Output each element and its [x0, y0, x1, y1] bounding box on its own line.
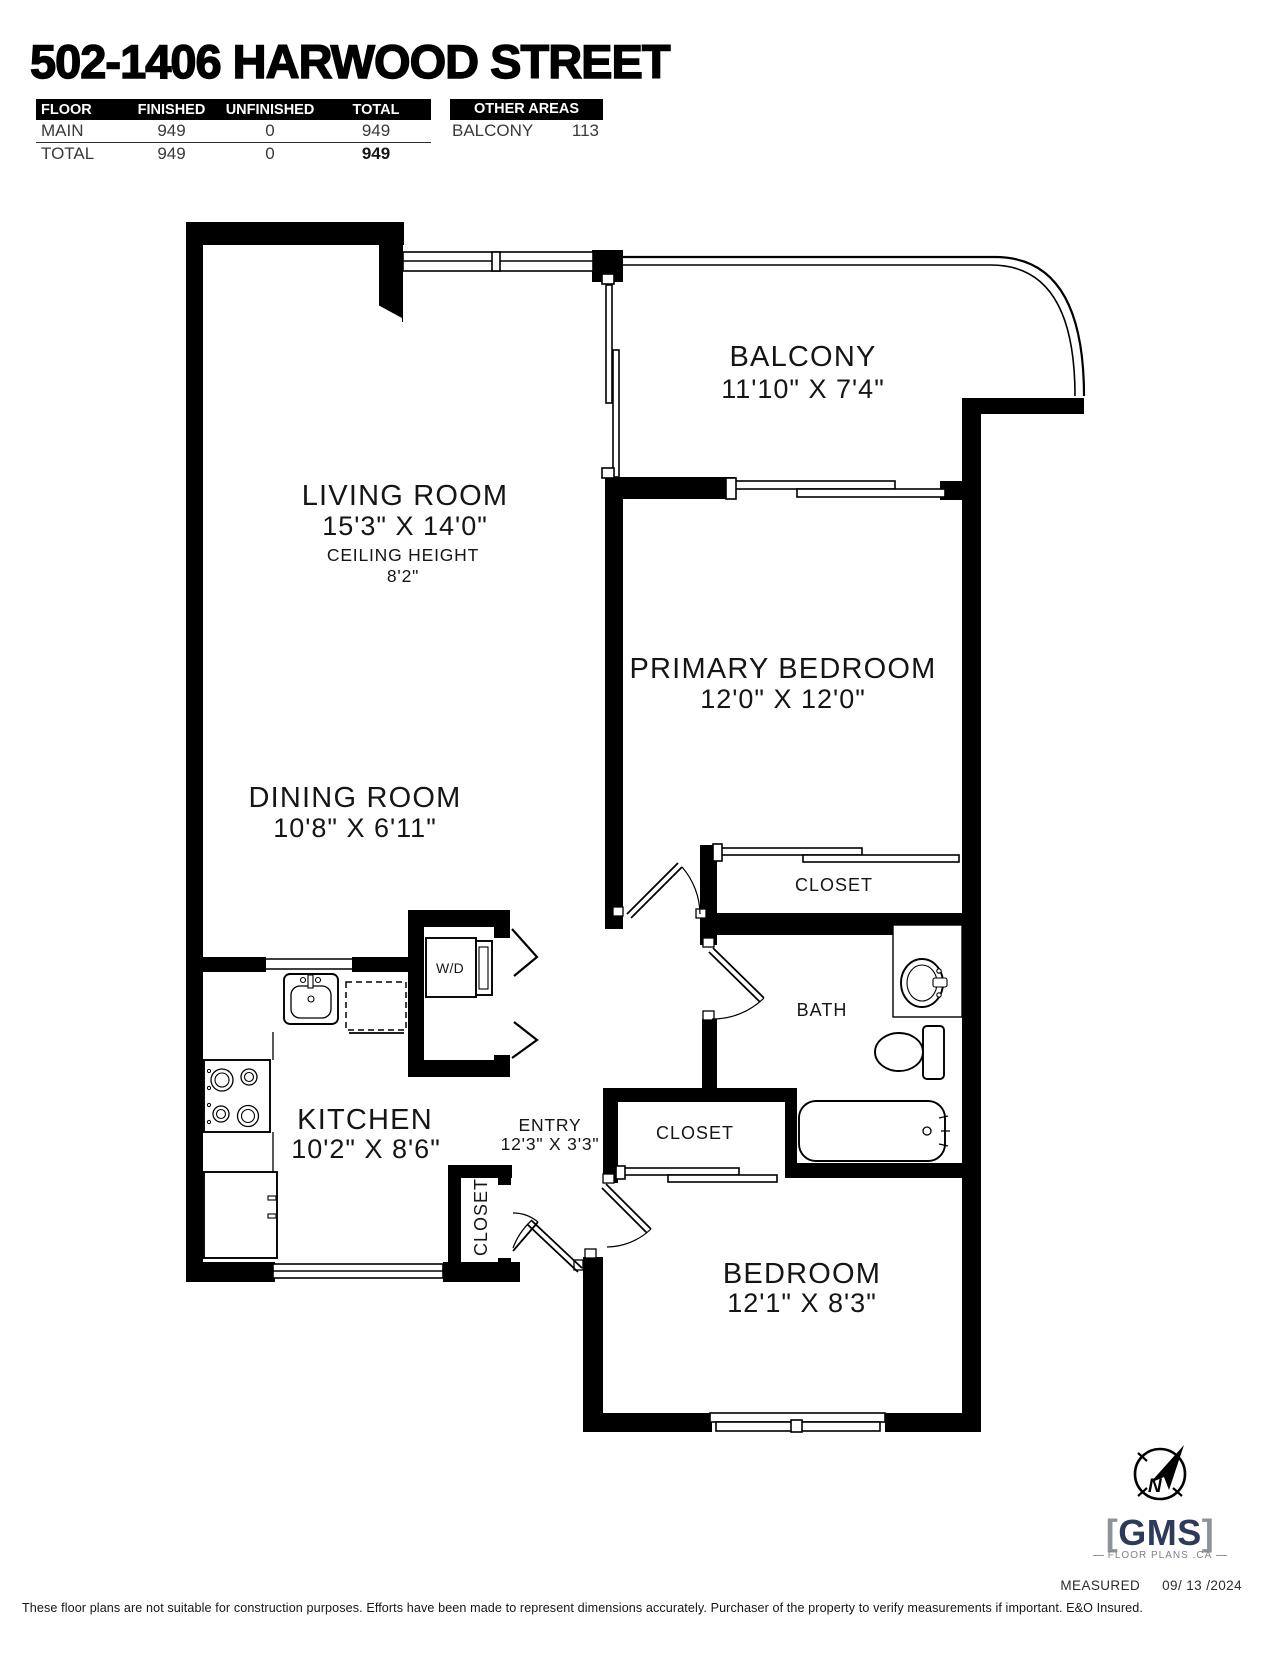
divider [1216, 1555, 1227, 1557]
label-closet-entry: CLOSET [471, 1178, 491, 1256]
label-living-room-dims: 15'3" X 14'0" [322, 511, 488, 541]
measured-line: MEASURED 09/ 13 /2024 [1060, 1578, 1242, 1593]
label-balcony: BALCONY [730, 341, 877, 373]
kitchen-window [273, 1264, 443, 1278]
label-balcony-dims: 11'10" X 7'4" [721, 374, 885, 404]
bathroom-vanity-sink [893, 925, 962, 1017]
gms-logo: [GMS] [1090, 1515, 1230, 1551]
kitchen-sink [284, 974, 338, 1024]
label-dining-room-dims: 10'8" X 6'11" [273, 813, 437, 843]
measured-label: MEASURED [1060, 1578, 1140, 1593]
bedroom-window [710, 1413, 885, 1432]
gms-subtitle: FLOOR PLANS .CA [1108, 1550, 1212, 1561]
label-entry: ENTRY [519, 1115, 582, 1135]
label-ceiling-value: 8'2" [387, 566, 419, 586]
bathroom-door [703, 938, 764, 1020]
refrigerator [204, 1172, 277, 1258]
label-bath: BATH [797, 1000, 848, 1020]
label-closet-primary: CLOSET [795, 875, 873, 895]
label-ceiling-height: CEILING HEIGHT [327, 545, 479, 565]
label-kitchen-dims: 10'2" X 8'6" [291, 1134, 441, 1164]
primary-bedroom-door [613, 863, 706, 918]
label-dining-room: DINING ROOM [249, 782, 462, 814]
primary-bedroom-window [726, 478, 945, 499]
label-bedroom: BEDROOM [723, 1258, 881, 1290]
bracket-left-icon: [ [1106, 1512, 1119, 1553]
stove [204, 1060, 270, 1132]
compass-icon: N [1127, 1440, 1193, 1506]
compass-north-label: N [1148, 1476, 1163, 1497]
kitchen-passthrough [266, 959, 352, 969]
brand-block: N [GMS] FLOOR PLANS .CA [1090, 1440, 1230, 1561]
label-entry-dims: 12'3" X 3'3" [501, 1134, 600, 1154]
bedroom-closet-sliding-door [616, 1166, 777, 1182]
label-bedroom-dims: 12'1" X 8'3" [727, 1288, 877, 1318]
entry-door [513, 1220, 583, 1272]
living-room-window [403, 252, 593, 271]
balcony-sliding-door [602, 274, 619, 478]
divider [1093, 1555, 1104, 1557]
bedroom-door [585, 1174, 651, 1258]
gms-subtitle-row: FLOOR PLANS .CA [1090, 1550, 1230, 1561]
label-primary-bedroom: PRIMARY BEDROOM [630, 653, 937, 685]
gms-logo-text: GMS [1118, 1512, 1202, 1553]
disclaimer: These floor plans are not suitable for c… [22, 1601, 1143, 1615]
dishwasher [346, 982, 406, 1033]
fixtures [204, 925, 962, 1258]
label-living-room: LIVING ROOM [302, 480, 509, 512]
bathtub [799, 1101, 950, 1161]
bracket-right-icon: ] [1202, 1512, 1215, 1553]
toilet [875, 1026, 944, 1079]
label-washer-dryer: W/D [436, 960, 464, 976]
floor-plan: BALCONY 11'10" X 7'4" LIVING ROOM 15'3" … [0, 0, 1280, 1657]
measured-date: 09/ 13 /2024 [1162, 1578, 1242, 1593]
wd-closet-doors [512, 929, 537, 1058]
label-primary-bedroom-dims: 12'0" X 12'0" [700, 684, 866, 714]
label-kitchen: KITCHEN [297, 1104, 433, 1136]
label-closet-bedroom: CLOSET [656, 1123, 734, 1143]
primary-closet-sliding-door [713, 844, 959, 862]
